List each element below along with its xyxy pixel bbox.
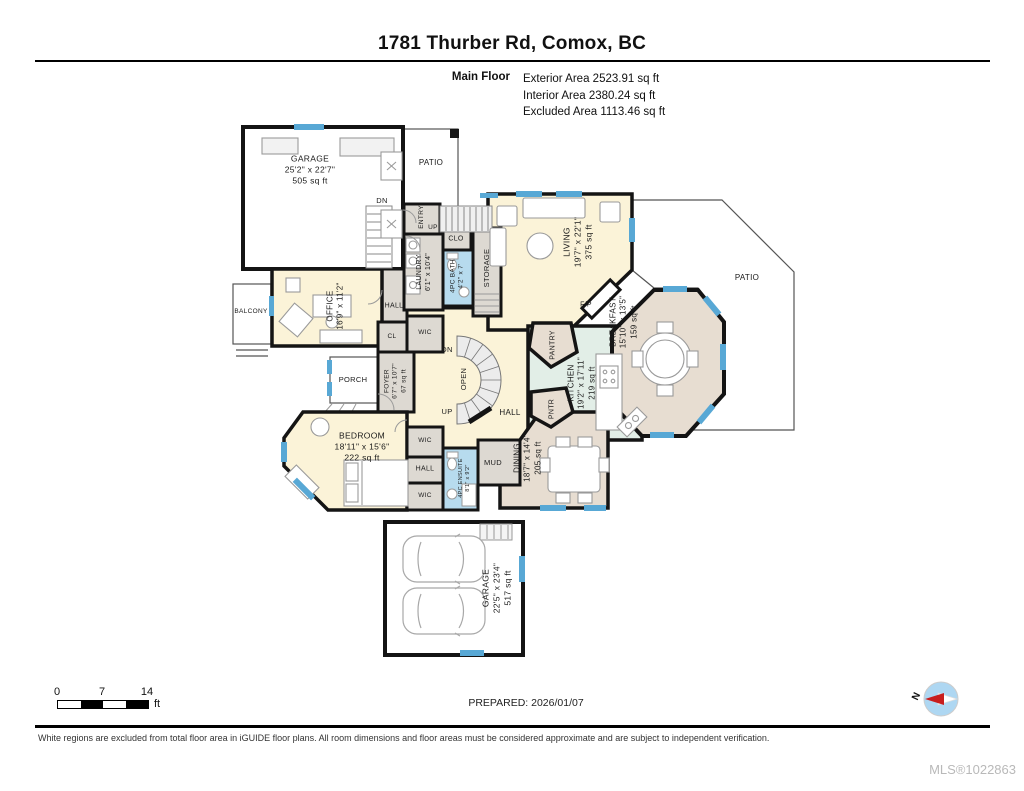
disclaimer-text: White regions are excluded from total fl… (38, 733, 769, 743)
room-label-clo: CLO (448, 234, 463, 243)
room-label-office: OFFICE16'9" x 11'2" (326, 282, 347, 329)
room-label-wic-low: WIC (418, 492, 432, 500)
room-label-cl: CL (388, 333, 397, 341)
stair-label-dn-center: DN (441, 345, 452, 355)
room-label-patio-top: PATIO (419, 158, 443, 168)
room-label-pntr: PNTR (547, 399, 556, 419)
room-label-ensuite: 4PC ENSUITE8'1" x 9'2" (458, 458, 472, 497)
room-label-hall-top: HALL (385, 301, 404, 310)
stair-label-up-entry: UP (428, 224, 438, 232)
room-label-porch: PORCH (339, 375, 368, 385)
excluded-area: Excluded Area 1113.46 sq ft (523, 104, 665, 121)
room-label-bedroom: BEDROOM18'11" x 15'6"222 sq ft (335, 430, 390, 463)
floor-plan-drawing (0, 0, 1024, 791)
stair-label-up-center: UP (441, 407, 452, 417)
room-label-entry: ENTRY (418, 205, 426, 228)
stair-label-open: OPEN (459, 368, 469, 390)
floor-label: Main Floor (0, 71, 510, 83)
page-title: 1781 Thurber Rd, Comox, BC (0, 33, 1024, 55)
exterior-area: Exterior Area 2523.91 sq ft (523, 71, 665, 88)
room-label-fireplace: F/P (580, 300, 592, 309)
room-label-hall-center: HALL (499, 408, 520, 418)
room-label-kitchen: KITCHEN19'2" x 17'11"219 sq ft (566, 357, 597, 409)
room-label-wic-mid: WIC (418, 437, 432, 445)
room-label-patio-right: PATIO (735, 273, 759, 283)
room-label-bath: 4PC BATH4'2" x 7' (450, 259, 467, 293)
area-summary: Exterior Area 2523.91 sq ft Interior Are… (523, 71, 665, 121)
room-label-hall-bed: HALL (416, 464, 435, 473)
room-label-laundry: LAUNDRY6'1" x 10'4" (415, 253, 433, 291)
room-label-wic-top: WIC (418, 329, 432, 337)
footer-divider (35, 725, 990, 728)
room-label-garage-top: GARAGE25'2" x 22'7"505 sq ft (285, 153, 336, 186)
header-divider (35, 60, 990, 62)
floor-plan-page: 1781 Thurber Rd, Comox, BC Main Floor Ex… (0, 0, 1024, 791)
room-label-mud: MUD (484, 458, 502, 468)
stair-label-dn-garage: DN (376, 196, 387, 206)
garage-entry-steps (480, 524, 512, 540)
balcony-outline (233, 284, 271, 356)
compass-icon (920, 678, 962, 720)
room-label-storage: STORAGE (482, 249, 492, 288)
prepared-date: PREPARED: 2026/01/07 (26, 697, 1024, 709)
room-label-garage-bottom: GARAGE22'5" x 23'4"517 sq ft (480, 563, 513, 614)
room-label-pantry: PANTRY (548, 330, 557, 360)
room-label-dining: DINING18'7" x 14'4"205 sq ft (512, 434, 543, 482)
room-label-breakfast: BREAKFAST15'10" x 13'5"159 sq ft (608, 296, 639, 349)
room-label-foyer: FOYER6'7" x 10'7"67 sq ft (383, 363, 408, 399)
mls-number: MLS®1022863 (929, 762, 1016, 777)
room-label-living-rot: LIVING19'7" x 22'1"375 sq ft (561, 217, 594, 268)
interior-area: Interior Area 2380.24 sq ft (523, 88, 665, 105)
room-label-balcony: BALCONY (234, 308, 267, 316)
entry-stairs (440, 206, 492, 232)
